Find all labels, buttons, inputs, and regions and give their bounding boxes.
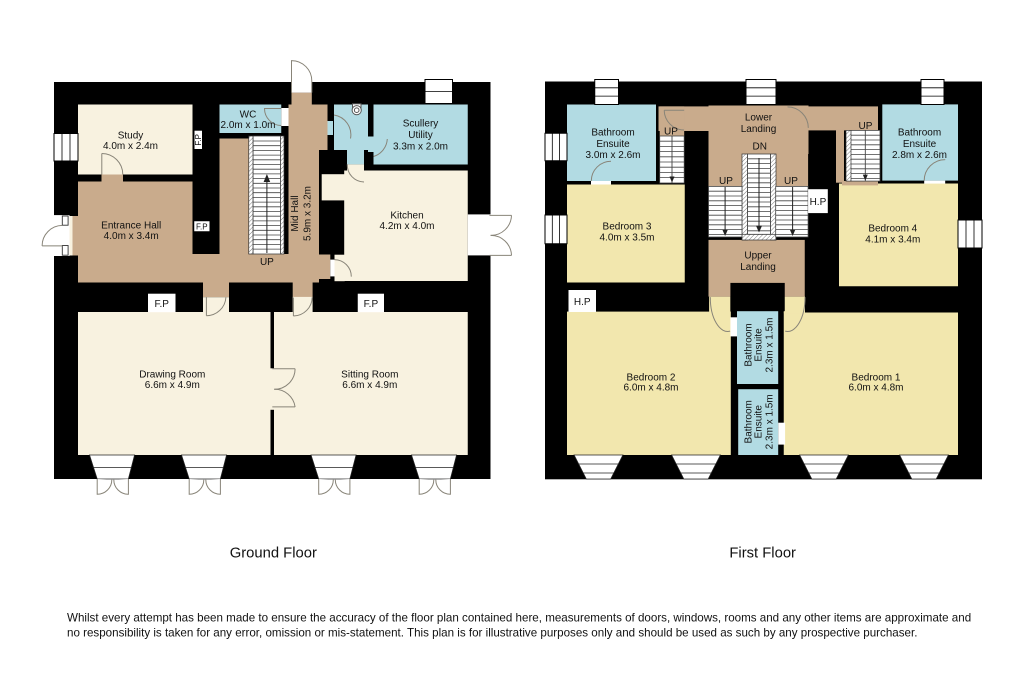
svg-text:Whilst every attempt has been: Whilst every attempt has been made to en… [67,611,971,624]
svg-text:no responsibility is taken for: no responsibility is taken for any error… [67,627,917,640]
svg-text:4.2m x 4.0m: 4.2m x 4.0m [379,221,434,232]
svg-text:First Floor: First Floor [729,546,796,562]
svg-text:2.0m x 1.0m: 2.0m x 1.0m [220,120,275,131]
svg-text:H.P: H.P [810,197,827,208]
svg-text:Entrance Hall: Entrance Hall [101,221,161,232]
svg-text:Lower: Lower [745,113,773,124]
svg-text:Kitchen: Kitchen [390,211,423,222]
svg-text:DN: DN [752,142,766,153]
svg-text:Sitting Room: Sitting Room [341,370,398,381]
svg-text:4.0m x 2.4m: 4.0m x 2.4m [103,141,158,152]
svg-text:3.0m x 2.6m: 3.0m x 2.6m [585,150,640,161]
svg-text:F.P: F.P [364,299,379,310]
svg-text:Bedroom 4: Bedroom 4 [868,223,917,234]
svg-text:Ensuite: Ensuite [903,139,937,150]
svg-text:Bedroom 3: Bedroom 3 [603,222,652,233]
svg-text:6.6m x 4.9m: 6.6m x 4.9m [342,380,397,391]
svg-text:F.P: F.P [194,134,203,146]
svg-text:F.P: F.P [196,222,208,231]
svg-text:Ensuite: Ensuite [754,328,765,362]
svg-text:Mid Hall: Mid Hall [290,195,301,231]
svg-text:4.0m x 3.4m: 4.0m x 3.4m [104,231,159,242]
svg-text:H.P: H.P [574,297,591,308]
svg-text:F.P: F.P [155,299,170,310]
svg-text:UP: UP [719,176,733,187]
svg-text:2.3m x 1.5m: 2.3m x 1.5m [765,394,776,449]
svg-text:4.1m x 3.4m: 4.1m x 3.4m [865,234,920,245]
svg-text:2.3m x 1.5m: 2.3m x 1.5m [765,317,776,372]
svg-text:Landing: Landing [740,262,776,273]
svg-text:6.6m x 4.9m: 6.6m x 4.9m [145,380,200,391]
svg-text:Study: Study [118,130,144,141]
svg-text:UP: UP [664,127,678,138]
svg-text:UP: UP [859,121,873,132]
svg-text:Drawing Room: Drawing Room [139,370,205,381]
svg-text:UP: UP [784,176,798,187]
svg-text:Upper: Upper [744,251,772,262]
svg-text:5.9m x 3.2m: 5.9m x 3.2m [302,186,313,241]
svg-text:Ensuite: Ensuite [754,405,765,439]
svg-text:Bathroom: Bathroom [591,128,634,139]
svg-text:6.0m x 4.8m: 6.0m x 4.8m [848,382,903,393]
svg-text:Scullery: Scullery [403,118,439,129]
svg-text:WC: WC [240,110,257,121]
svg-text:UP: UP [260,257,274,268]
svg-text:6.0m x 4.8m: 6.0m x 4.8m [623,382,678,393]
svg-text:Utility: Utility [408,130,432,141]
svg-text:Ensuite: Ensuite [596,139,630,150]
svg-text:Landing: Landing [741,124,777,135]
svg-text:3.3m x 2.0m: 3.3m x 2.0m [393,141,448,152]
svg-text:4.0m x 3.5m: 4.0m x 3.5m [599,233,654,244]
svg-text:2.8m x 2.6m: 2.8m x 2.6m [892,150,947,161]
svg-text:Bathroom: Bathroom [898,128,941,139]
svg-text:Ground Floor: Ground Floor [230,546,317,562]
